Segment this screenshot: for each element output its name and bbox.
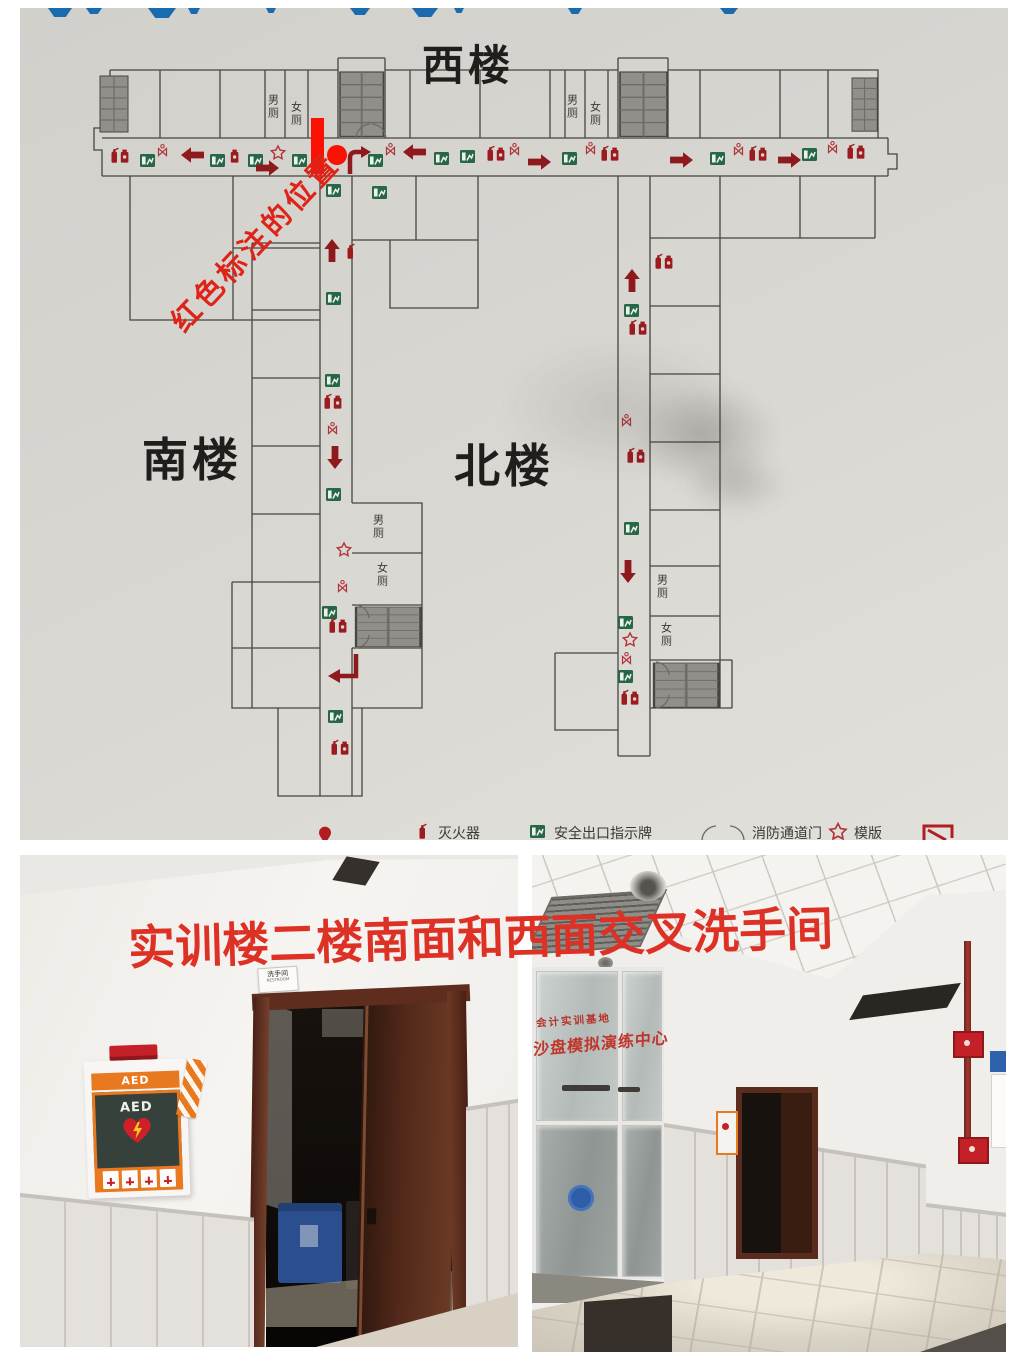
glass-partition: 会计实训基地 沙盘模拟演练中心 — [532, 967, 664, 1279]
mens-toilet-label: 男厕 — [267, 94, 279, 120]
aed-window: AED — [92, 1089, 183, 1172]
fire-extinguisher-icon — [332, 740, 339, 755]
aed-device-label: AED — [95, 1099, 177, 1117]
bin-label — [300, 1225, 318, 1247]
open-door-panel — [356, 1000, 456, 1347]
turn-arrow-icon — [338, 654, 356, 676]
door-handle — [618, 1087, 640, 1092]
south-corridor-icons — [322, 184, 356, 755]
fire-extinguisher-icon — [750, 146, 757, 161]
exit-sign-icon — [210, 154, 225, 167]
fire-extinguisher-icon — [656, 254, 663, 269]
aed-cabinet: AED AED — [84, 1053, 191, 1198]
exit-sign-icon — [624, 522, 639, 535]
mens-toilet-label: 男厕 — [566, 94, 578, 120]
turn-arrow-head — [328, 669, 340, 683]
valve-icon — [587, 143, 595, 154]
north-building-label: 北楼 — [454, 430, 554, 496]
wall-notice-strip — [991, 1074, 1006, 1148]
exit-sign-icon — [434, 152, 449, 165]
ceiling — [20, 855, 518, 895]
exit-sign-icon — [325, 374, 340, 387]
dark-object — [584, 1295, 672, 1352]
fire-alarm-box — [958, 1137, 989, 1164]
fire-hydrant-icon — [231, 150, 239, 163]
womens-toilet-label: 女厕 — [660, 622, 672, 648]
interior-wall-sliver — [266, 1003, 292, 1213]
fire-hydrant-icon — [334, 396, 342, 409]
fire-alarm-box — [109, 1044, 157, 1061]
far-door-panel — [781, 1093, 813, 1253]
door-handle — [562, 1085, 610, 1091]
evacuation-arrow-icon — [624, 269, 640, 292]
valve-icon — [511, 144, 519, 155]
exit-sign-icon — [802, 148, 817, 161]
evacuation-arrow-icon — [324, 239, 340, 262]
legend-label: 安全出口指示牌 — [554, 825, 652, 840]
exit-sign-icon — [368, 154, 383, 167]
fire-hydrant-icon — [341, 742, 349, 755]
aed-instruction-tile — [140, 1169, 157, 1188]
fire-extinguisher-icon — [420, 824, 427, 839]
evacuation-arrow-icon — [620, 560, 636, 583]
exit-sign-icon — [322, 606, 337, 619]
exit-sign-icon — [710, 152, 725, 165]
alarm-button — [969, 1146, 975, 1152]
fire-hydrant-icon — [631, 692, 639, 705]
aed-heart-mark — [722, 1123, 729, 1130]
logo-badge — [568, 1185, 594, 1211]
exit-sign-icon — [562, 152, 577, 165]
floor-plan-photo: 西楼 南楼 北楼 男厕 女厕 男厕 女厕 男厕 女厕 男厕 女厕 红色标注的位置… — [20, 8, 1008, 840]
fire-alarm-box — [953, 1031, 984, 1058]
valve-icon — [623, 415, 631, 426]
legend-label: 灭火器 — [438, 826, 480, 840]
aed-heart-icon — [120, 1114, 155, 1145]
exit-sign-icon — [618, 616, 633, 629]
evacuation-arrow-icon — [403, 144, 426, 160]
fire-hydrant-icon — [857, 146, 865, 159]
fire-extinguisher-icon — [630, 320, 637, 335]
fire-extinguisher-icon — [112, 148, 119, 163]
fire-extinguisher-icon — [848, 144, 855, 159]
legend-bracket-icon — [924, 826, 952, 840]
aed-instruction-tile — [102, 1171, 119, 1190]
top-corridor-icons — [112, 142, 865, 200]
exit-sign-icon — [624, 304, 639, 317]
stairs — [100, 76, 128, 132]
stairs — [620, 72, 667, 136]
valve-icon — [735, 144, 743, 155]
aed-cabinet-body: AED AED — [84, 1058, 191, 1198]
exit-sign-icon — [372, 186, 387, 199]
womens-toilet-label: 女厕 — [290, 101, 302, 127]
ceiling-vent — [332, 856, 379, 885]
fire-hydrant-icon — [759, 148, 767, 161]
valve-icon — [623, 653, 631, 664]
fire-hydrant-icon — [339, 620, 347, 633]
fire-extinguisher-icon — [330, 618, 337, 633]
evacuation-arrow-icon — [528, 154, 551, 170]
exit-sign-icon — [326, 292, 341, 305]
aed-instructions — [94, 1165, 183, 1192]
valve-icon — [159, 145, 167, 156]
photo-collage: 西楼 南楼 北楼 男厕 女厕 男厕 女厕 男厕 女厕 男厕 女厕 红色标注的位置… — [0, 0, 1024, 1365]
valve-icon — [329, 423, 337, 434]
legend-label: 消防通道门 — [752, 826, 822, 840]
womens-toilet-label: 女厕 — [376, 562, 388, 588]
blue-recycle-bin — [278, 1203, 342, 1283]
aed-header: AED — [91, 1070, 180, 1090]
star-icon — [830, 824, 846, 839]
fire-extinguisher-icon — [602, 146, 609, 161]
exit-sign-icon — [326, 488, 341, 501]
exit-sign-icon — [618, 670, 633, 683]
aed-cabinet-small — [716, 1111, 738, 1155]
exit-sign-icon — [328, 710, 343, 723]
evacuation-arrow-icon — [327, 446, 343, 469]
valve-icon — [387, 144, 395, 155]
fire-extinguisher-icon — [325, 394, 332, 409]
star-icon — [337, 543, 350, 556]
blue-wall-sign — [990, 1051, 1006, 1072]
mens-toilet-label: 男厕 — [656, 574, 668, 600]
ceiling-opening — [849, 983, 961, 1020]
exit-sign-icon — [460, 150, 475, 163]
exit-sign-icon — [140, 154, 155, 167]
star-icon — [623, 633, 636, 646]
glass-pane — [622, 1125, 662, 1277]
west-building-label: 西楼 — [422, 32, 514, 93]
fire-extinguisher-icon — [628, 448, 635, 463]
fire-hydrant-icon — [639, 322, 647, 335]
evacuation-arrow-icon — [778, 152, 801, 168]
evacuation-arrow-icon — [670, 152, 693, 168]
fire-door-icon — [702, 826, 744, 840]
valve-icon — [829, 142, 837, 153]
plan-legend: 灭火器 安全出口指示牌 消防通道门 模版 — [20, 820, 1008, 840]
evacuation-arrow-icon — [181, 147, 204, 163]
stairs — [654, 663, 718, 707]
legend-label: 模版 — [854, 826, 882, 840]
womens-toilet-label: 女厕 — [589, 101, 601, 127]
stairs — [356, 607, 420, 647]
aed-instruction-tile — [121, 1170, 138, 1189]
legend-marker-icon — [319, 827, 331, 840]
stairs — [852, 78, 877, 131]
mens-toilet-label: 男厕 — [372, 514, 384, 540]
fire-hydrant-icon — [637, 450, 645, 463]
fire-extinguisher-icon — [488, 146, 495, 161]
valve-icon — [339, 581, 347, 592]
star-icon — [271, 146, 284, 159]
alarm-button — [964, 1040, 970, 1046]
fire-hydrant-icon — [665, 256, 673, 269]
fire-hydrant-icon — [497, 148, 505, 161]
restroom-sign-subtext: RESTROOM — [263, 977, 294, 983]
fire-extinguisher-icon — [622, 690, 629, 705]
aed-instruction-tile — [159, 1169, 176, 1188]
exit-sign-icon — [530, 825, 545, 838]
door-lock-plate — [367, 1208, 376, 1224]
far-door — [736, 1087, 818, 1259]
wainscot-left-wall — [20, 1193, 254, 1347]
fire-hydrant-icon — [121, 150, 129, 163]
fire-extinguisher-icon — [348, 244, 355, 259]
interior-poster — [322, 1009, 364, 1037]
south-building-label: 南楼 — [142, 424, 242, 490]
fire-hydrant-icon — [611, 148, 619, 161]
